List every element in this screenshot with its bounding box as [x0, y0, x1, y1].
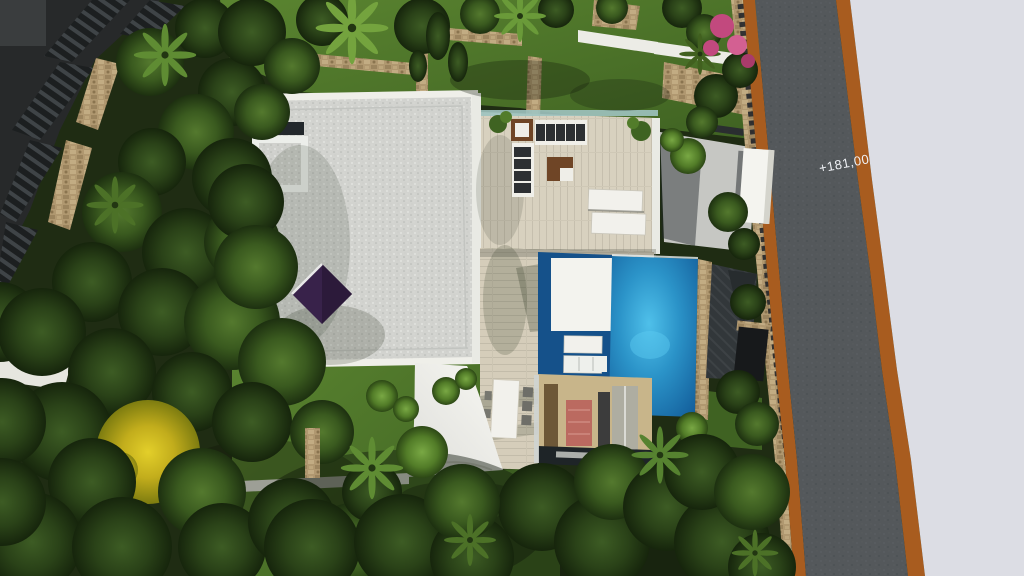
- pink-flowers: [703, 40, 719, 56]
- dining-table: [491, 379, 520, 438]
- terrace-plant: [500, 111, 512, 123]
- render-canvas: +181,00: [0, 0, 1024, 576]
- shadow: [450, 60, 590, 100]
- area-rug: [566, 400, 592, 446]
- pool-bridge: [565, 356, 607, 372]
- cypress-tree: [448, 42, 468, 82]
- bush: [660, 128, 684, 152]
- dining-chair: [521, 415, 532, 426]
- glass-balustrade: [534, 375, 539, 463]
- courtyard-furniture: [598, 392, 610, 450]
- daybed: [588, 189, 643, 212]
- tree: [686, 106, 718, 138]
- pool-pergola: [551, 258, 612, 331]
- lounger: [564, 336, 602, 354]
- tree: [212, 382, 292, 462]
- palm-tree: [444, 514, 496, 566]
- tree: [708, 192, 748, 232]
- dining-chair: [523, 387, 534, 398]
- terrace-plant: [627, 117, 639, 129]
- tree: [290, 400, 354, 464]
- shadow: [570, 79, 670, 111]
- parapet-wall: [472, 93, 481, 363]
- bush: [455, 368, 477, 390]
- tree: [728, 228, 760, 260]
- pink-flowers: [710, 14, 734, 38]
- tree: [714, 454, 790, 530]
- tree: [264, 38, 320, 94]
- pink-flowers: [741, 54, 755, 68]
- side-table-top: [515, 123, 529, 137]
- palm-tree: [732, 530, 779, 576]
- palm-tree: [341, 437, 403, 499]
- daybed: [591, 212, 646, 235]
- stone-wall: [305, 428, 320, 478]
- cypress-tree: [426, 12, 450, 60]
- sun-daybeds: [587, 189, 647, 235]
- shadow: [483, 245, 527, 355]
- neighbor-roof-upper: [0, 0, 46, 46]
- pink-flowers: [727, 35, 747, 55]
- palm-tree: [134, 24, 196, 86]
- coffee-table-tray: [560, 168, 573, 181]
- parapet-wall: [652, 118, 660, 254]
- bush: [393, 396, 419, 422]
- aerial-villa-render: +181,00: [0, 0, 1024, 576]
- dining-chair: [522, 401, 533, 412]
- cypress-tree: [409, 50, 427, 82]
- tree: [735, 402, 779, 446]
- dining-chair: [484, 391, 491, 400]
- palm-tree: [631, 426, 688, 483]
- tree: [214, 225, 298, 309]
- pool-highlight: [630, 331, 670, 359]
- wood-panel: [544, 384, 558, 454]
- tree: [396, 426, 448, 478]
- palm-tree: [86, 176, 143, 233]
- tree: [730, 284, 766, 320]
- tree: [234, 84, 290, 140]
